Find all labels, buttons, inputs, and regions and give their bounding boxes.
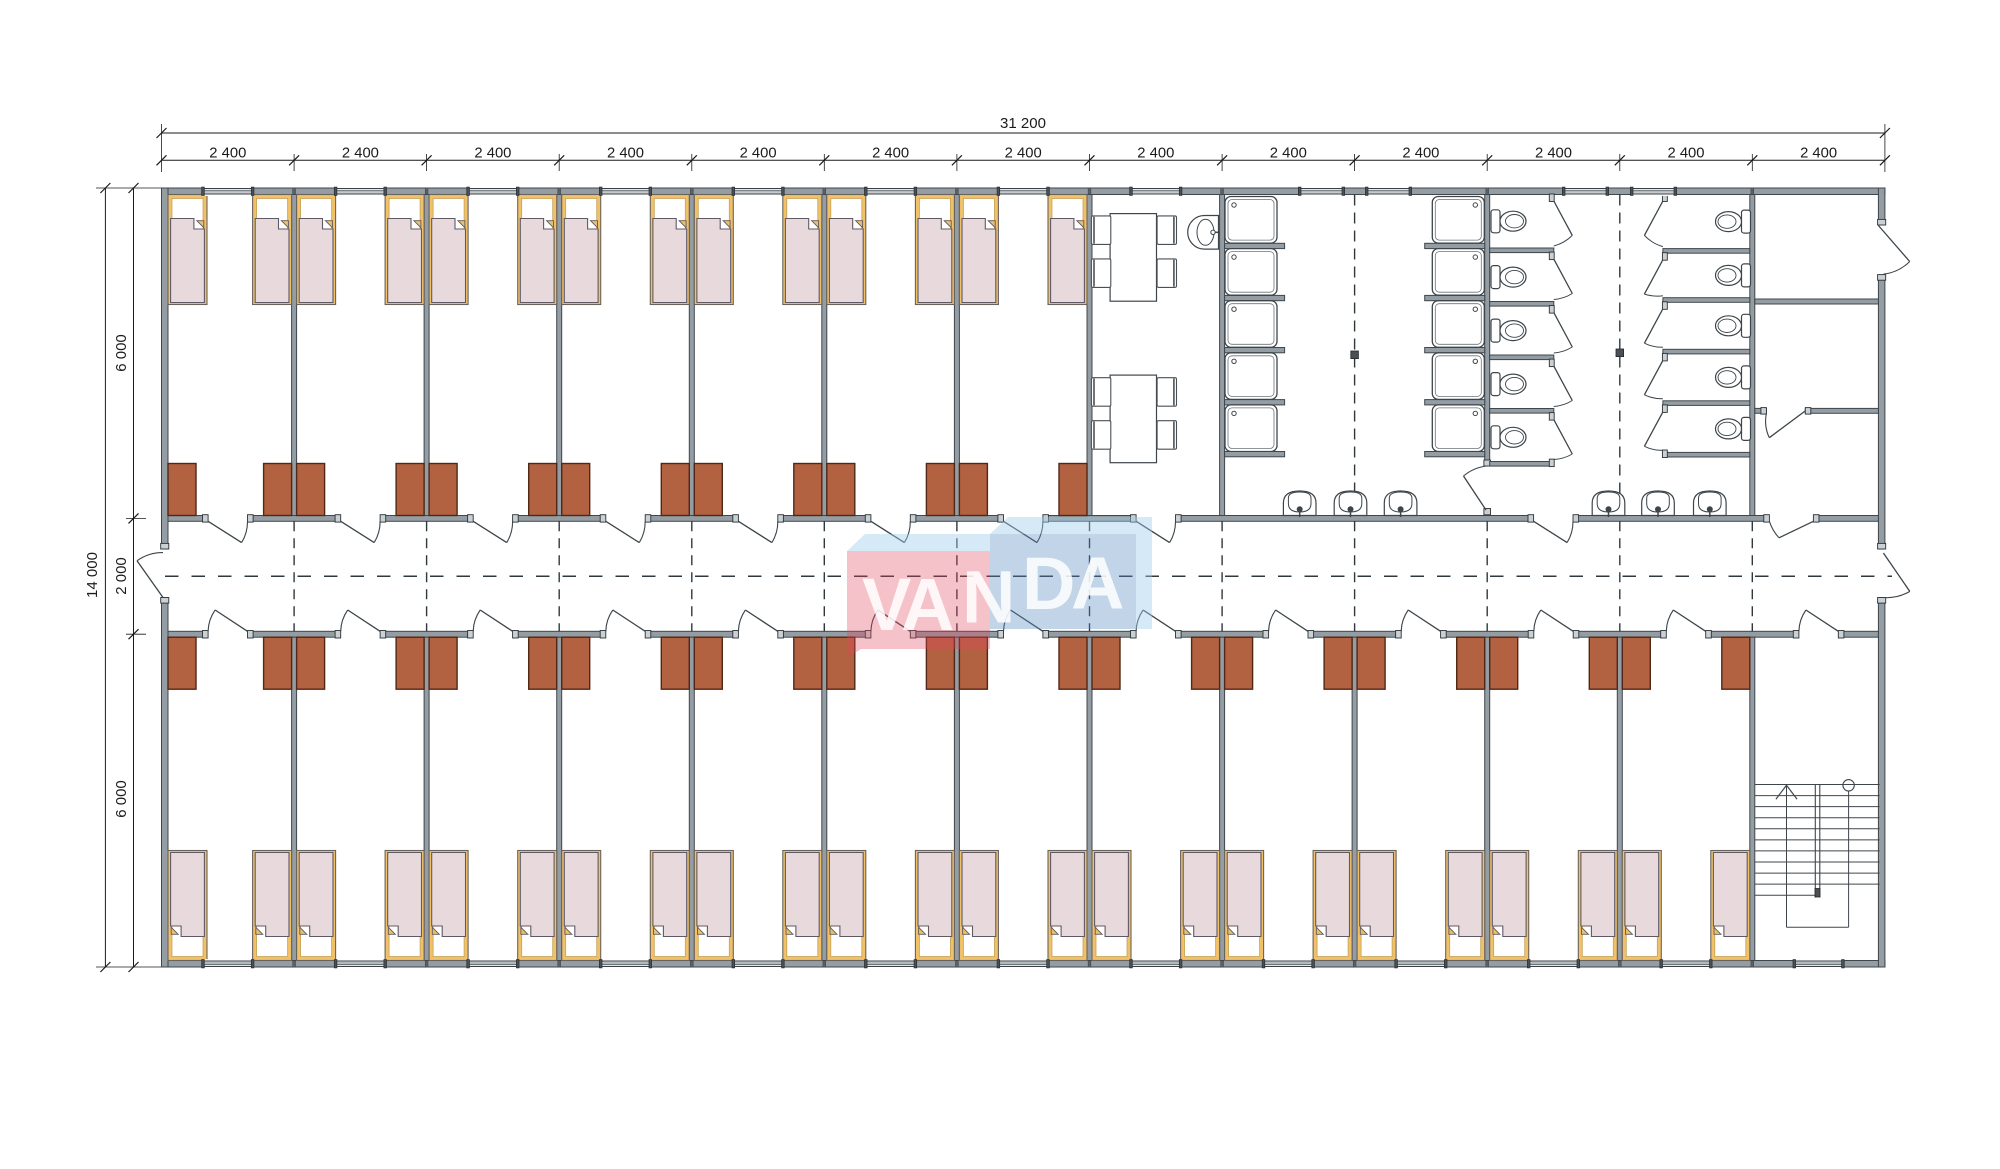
svg-text:2 000: 2 000 (113, 557, 130, 595)
svg-text:2 400: 2 400 (740, 146, 777, 162)
svg-text:2 400: 2 400 (1667, 146, 1704, 162)
svg-text:2 400: 2 400 (1402, 146, 1439, 162)
svg-text:A: A (1071, 542, 1124, 625)
svg-text:14 000: 14 000 (84, 552, 101, 598)
svg-text:31 200: 31 200 (1000, 115, 1046, 132)
svg-text:D: D (1022, 542, 1075, 625)
svg-text:2 400: 2 400 (474, 146, 511, 162)
svg-text:N: N (962, 556, 1015, 639)
svg-text:2 400: 2 400 (1137, 146, 1174, 162)
svg-text:2 400: 2 400 (342, 146, 379, 162)
svg-text:2 400: 2 400 (1800, 146, 1837, 162)
svg-text:6 000: 6 000 (113, 334, 130, 372)
svg-text:A: A (901, 563, 954, 646)
svg-text:2 400: 2 400 (1005, 146, 1042, 162)
svg-text:2 400: 2 400 (607, 146, 644, 162)
svg-text:6 000: 6 000 (113, 780, 130, 818)
svg-text:2 400: 2 400 (872, 146, 909, 162)
svg-text:2 400: 2 400 (1270, 146, 1307, 162)
svg-text:2 400: 2 400 (209, 146, 246, 162)
svg-text:2 400: 2 400 (1535, 146, 1572, 162)
